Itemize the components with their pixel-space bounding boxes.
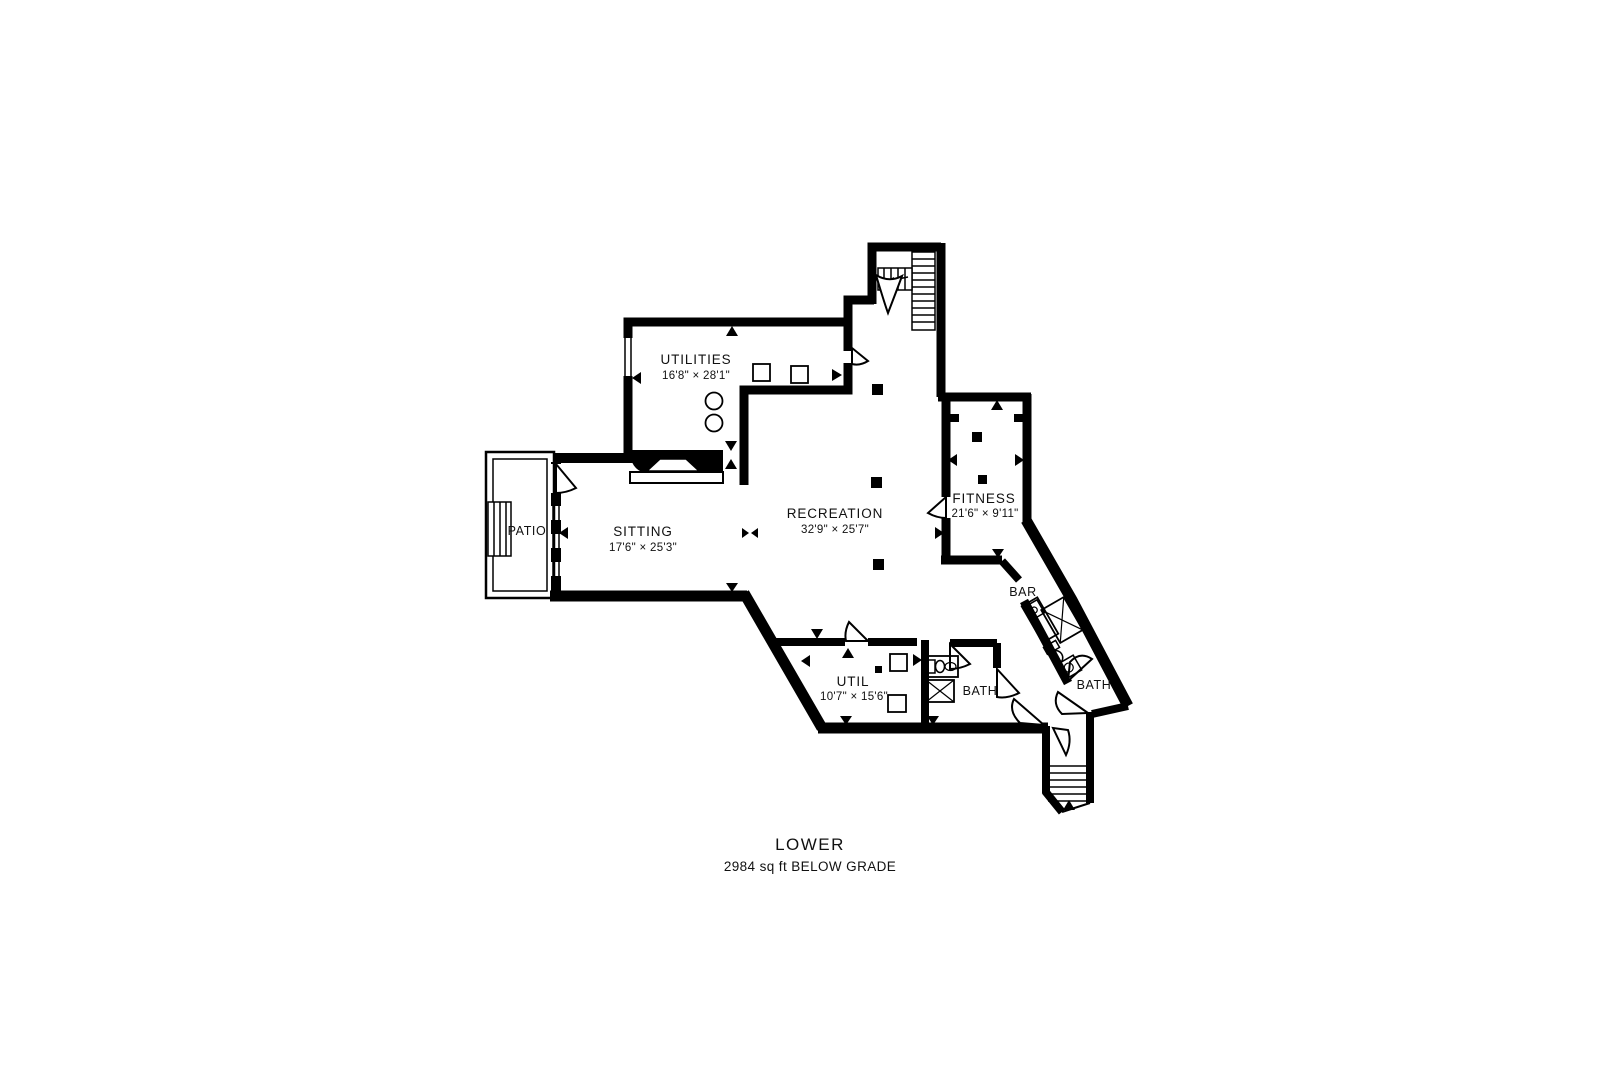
appliance-icon [890,654,907,671]
room-label-bath-left: BATH [963,684,998,698]
stairs-icon [876,252,935,330]
tank-icon [706,415,723,432]
room-label-sitting: SITTING [613,524,673,539]
room-dims-fitness: 21'6" × 9'11" [951,508,1018,520]
door-swing-icon [928,497,946,518]
column-marker [978,475,987,484]
door-swing-icon [1012,699,1044,725]
room-label-fitness: FITNESS [952,491,1015,506]
room-dims-utilities: 16'8" × 28'1" [662,370,730,382]
column-marker [871,477,882,488]
left-bath-fixtures [926,656,958,702]
door-swing-icon [556,464,576,493]
caption-title: LOWER [775,835,845,854]
toilet-icon [928,660,945,673]
window-icon [621,338,634,376]
column-marker [872,384,883,395]
appliance-icon [888,695,906,712]
caption: LOWER 2984 sq ft BELOW GRADE [724,835,896,874]
room-label-bar: BAR [1009,585,1037,599]
column-marker [972,432,982,442]
room-dims-recreation: 32'9" × 25'7" [801,524,869,536]
door-swing-icon [876,275,902,313]
room-label-patio: PATIO [508,524,547,538]
fireplace-icon [630,450,723,483]
room-label-bath-right: BATH [1077,678,1112,692]
room-label-utilities: UTILITIES [660,352,731,367]
column-marker [875,666,882,673]
room-label-util: UTIL [837,674,870,689]
room-dims-util: 10'7" × 15'6" [820,691,888,703]
util-fixtures [875,654,907,712]
columns [871,384,987,570]
shower-icon [926,680,954,702]
door-swing-icon [1053,728,1070,755]
door-swing-icon [1056,692,1088,714]
tank-icon [706,393,723,410]
floor-plan-svg: UTILITIES 16'8" × 28'1" RECREATION 32'9"… [0,0,1620,1080]
room-dims-sitting: 17'6" × 25'3" [609,542,677,554]
room-label-recreation: RECREATION [787,506,884,521]
appliance-icon [753,364,770,381]
column-marker [873,559,884,570]
caption-subtitle: 2984 sq ft BELOW GRADE [724,859,896,874]
appliance-icon [791,366,808,383]
door-swing-icon [845,622,868,641]
floor-plan: UTILITIES 16'8" × 28'1" RECREATION 32'9"… [0,0,1620,1080]
room-labels: UTILITIES 16'8" × 28'1" RECREATION 32'9"… [508,352,1112,703]
door-swing-icon [997,669,1019,698]
door-swing-icon [852,348,868,365]
